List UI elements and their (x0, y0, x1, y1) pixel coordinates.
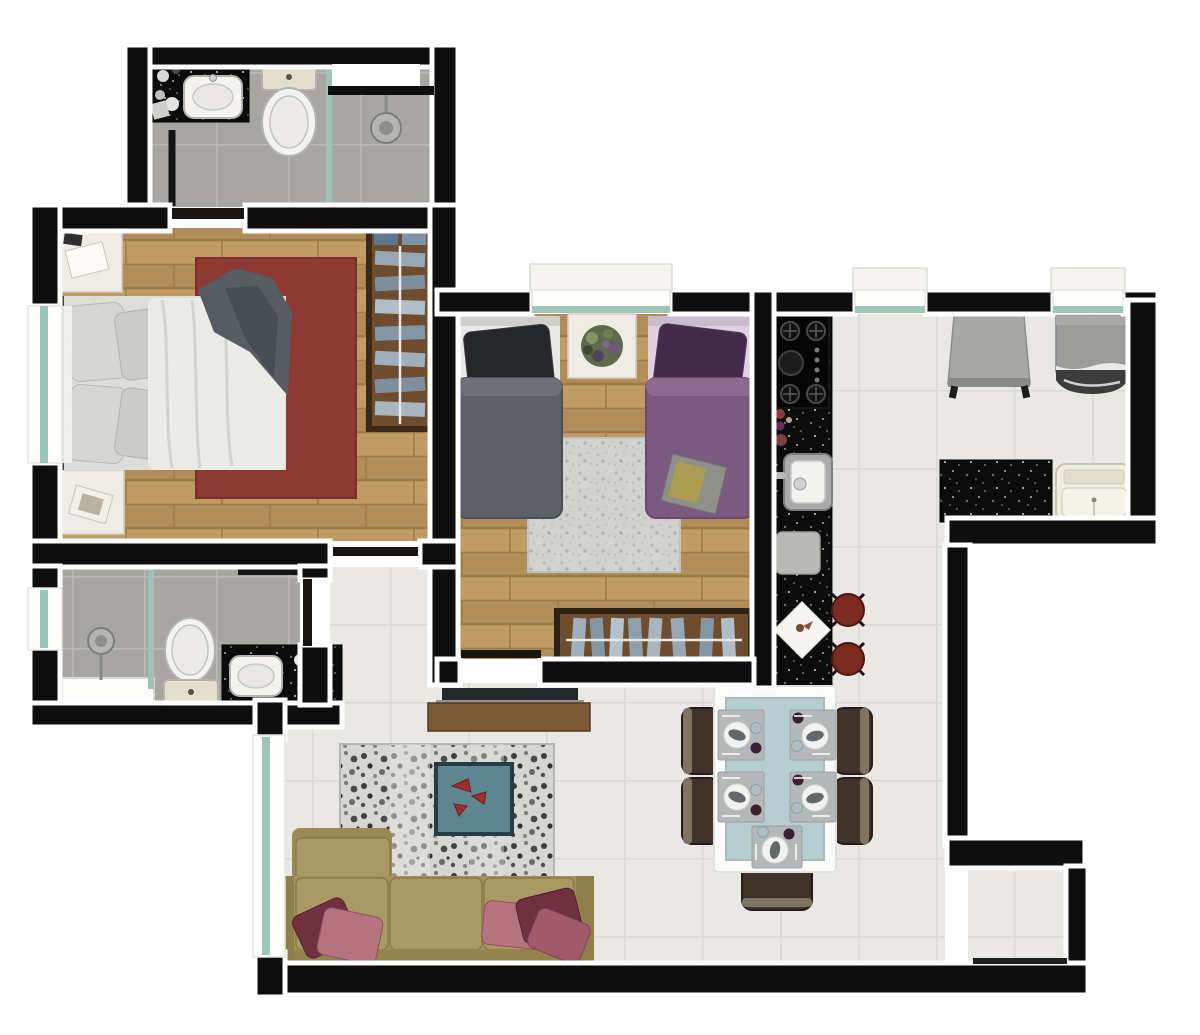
floor-plan-svg (0, 0, 1200, 1035)
service-window (1051, 268, 1125, 313)
master-nightstand-top (58, 230, 122, 292)
balcony-sliding-door (973, 958, 1067, 964)
living-window (253, 735, 285, 957)
kitchen-window (853, 268, 927, 313)
balcony-nook-floor (968, 866, 1068, 966)
bedroom2-window (530, 264, 672, 313)
master-bedroom-window (28, 306, 62, 463)
bath1-faucet-icon (210, 75, 217, 82)
master-double-bed (48, 268, 292, 470)
curtain (62, 306, 72, 463)
single-bed-dark (456, 316, 562, 518)
bath2-toilet (164, 618, 218, 704)
bath2-shower-partition-glass (148, 567, 154, 689)
faucet-icon (794, 478, 806, 490)
bath1-niche (332, 64, 420, 88)
bath1-toilet (262, 64, 316, 156)
drying-rack (948, 316, 1030, 399)
master-wardrobe (366, 220, 434, 432)
place-setting (752, 826, 802, 868)
washing-machine (1056, 316, 1128, 394)
tv-console (428, 688, 590, 731)
bar-stool (832, 643, 864, 675)
bath1-door (172, 208, 244, 219)
bed2-nightstand (568, 314, 636, 378)
teal-ottoman (436, 764, 512, 834)
place-setting (790, 772, 836, 822)
duvet (456, 378, 562, 518)
cooktop (775, 316, 829, 408)
place-setting (718, 772, 764, 822)
bath1-sink-basin (193, 84, 233, 110)
master-bedroom-door (333, 547, 418, 556)
bath2-door (303, 579, 312, 646)
place-setting (790, 710, 836, 760)
place-setting (718, 710, 764, 760)
laundry-tank (1056, 464, 1132, 522)
bath2-bench (62, 678, 154, 702)
bath2-window (28, 588, 62, 650)
cutting-board (776, 532, 820, 574)
pan (779, 351, 803, 375)
seat-cushion (390, 878, 482, 950)
kitchen-floor (833, 314, 945, 688)
potted-plant (581, 325, 623, 367)
service-counter (940, 460, 1052, 522)
bedroom2-door (461, 650, 541, 658)
tv (442, 688, 578, 701)
floor-plan-canvas (0, 0, 1200, 1035)
bar-stool (832, 594, 864, 626)
single-bed-purple (646, 316, 754, 518)
master-nightstand-bottom (60, 470, 124, 534)
